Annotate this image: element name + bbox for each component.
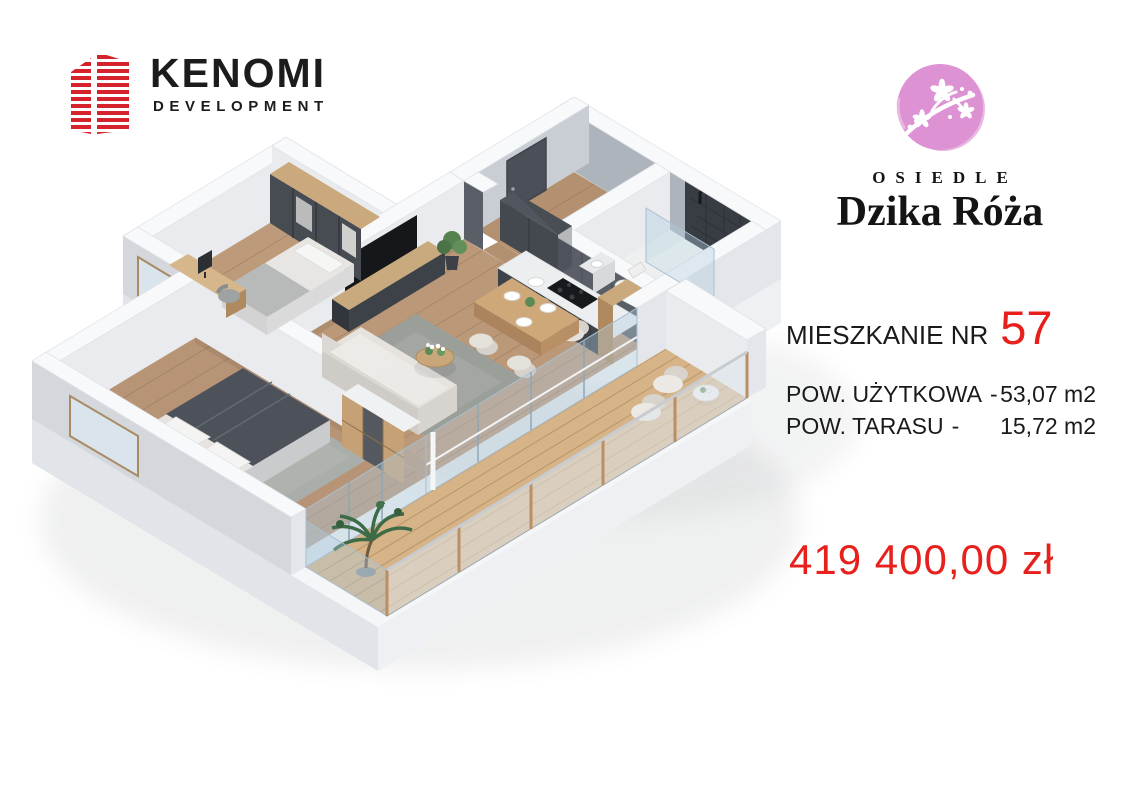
unit-number: 57 [1000,300,1052,355]
area-value: 53,07 m2 [1000,381,1096,408]
door-handle [511,187,515,191]
estate-logo: OSIEDLE Dzika Róża [845,50,1035,240]
unit-line: MIESZKANIE NR 57 [786,300,1096,355]
price-text: 419 400,00 zł [789,536,1054,584]
unit-label: MIESZKANIE NR [786,320,988,351]
estate-name: Dzika Róża [805,188,1075,236]
area-row-usable: POW. UŻYTKOWA - 53,07 m2 [786,381,1096,408]
developer-logo: KENOMI DEVELOPMENT [64,36,394,146]
building-icon [64,38,136,138]
area-separator: - [990,381,998,408]
area-table: POW. UŻYTKOWA - 53,07 m2 POW. TARASU - 1… [786,381,1096,440]
developer-name: KENOMI [150,50,326,97]
developer-subtitle: DEVELOPMENT [153,98,329,115]
listing-flyer: KENOMI DEVELOPMENT [0,0,1132,800]
estate-kicker: OSIEDLE [845,168,1035,188]
blossom-icon [845,50,1035,165]
area-label: POW. UŻYTKOWA [786,381,982,408]
listing-info: MIESZKANIE NR 57 POW. UŻYTKOWA - 53,07 m… [786,300,1096,440]
desk-chair [218,289,240,303]
area-separator: - [952,413,960,440]
area-row-terrace: POW. TARASU - 15,72 m2 [786,413,1096,440]
area-label: POW. TARASU [786,413,944,440]
area-value: 15,72 m2 [1000,413,1096,440]
